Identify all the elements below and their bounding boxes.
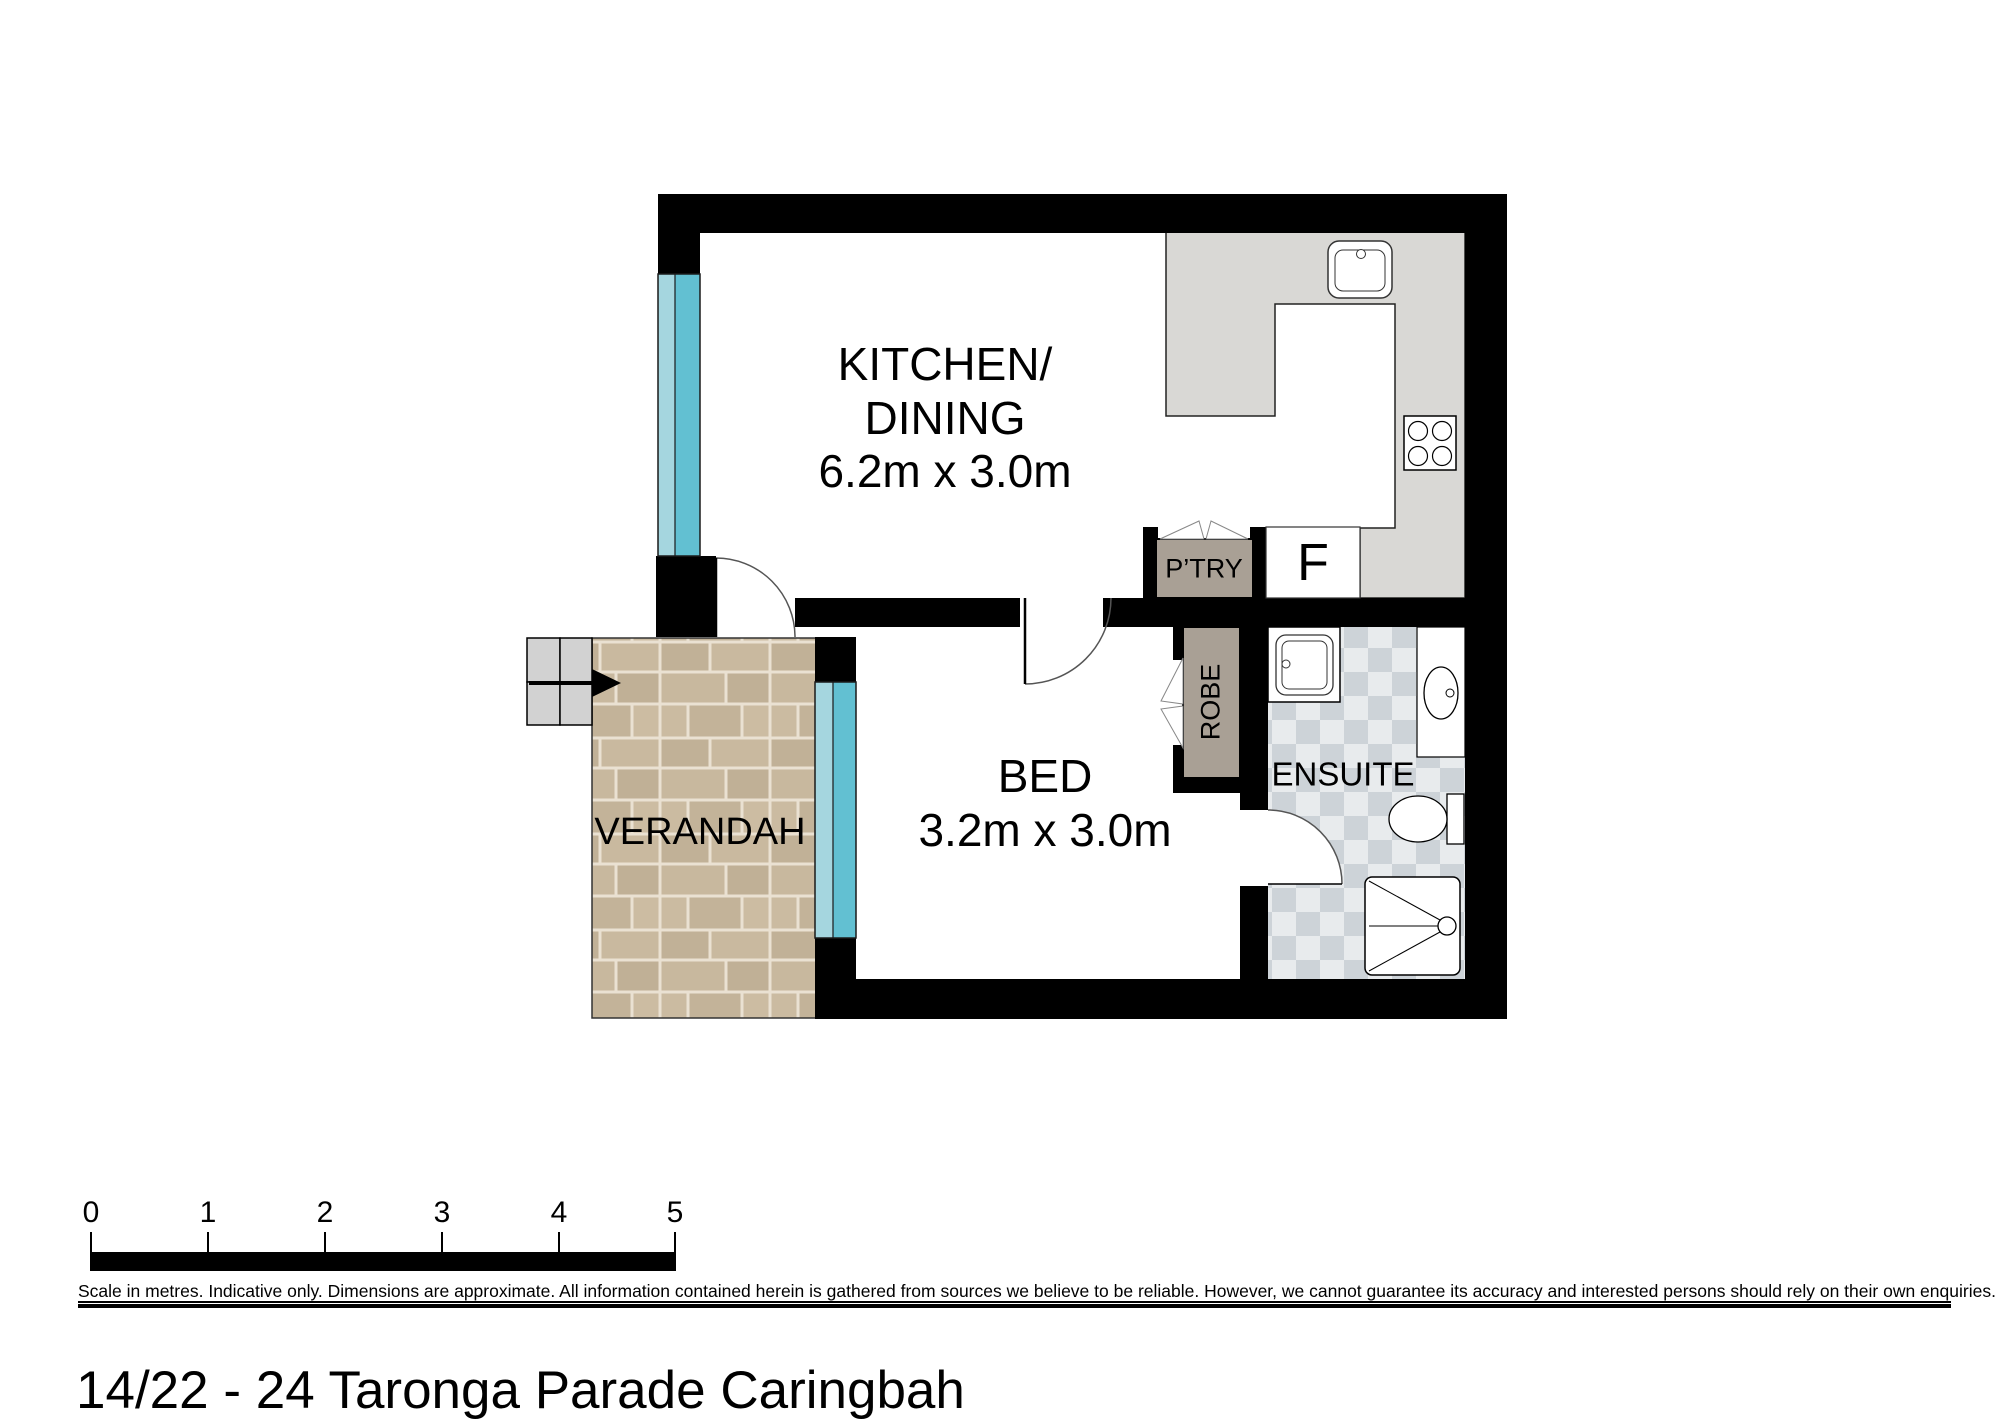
wall-left-lower xyxy=(656,556,716,637)
kitchen-dining-dimensions: 6.2m x 3.0m xyxy=(818,448,1071,494)
wall-kitchen-bed-right xyxy=(1103,598,1465,627)
scale-tick-label: 0 xyxy=(83,1198,100,1228)
verandah-label: VERANDAH xyxy=(594,813,805,851)
bed-window xyxy=(815,682,856,938)
wall-bed-left-lower xyxy=(815,938,856,979)
kitchen-sink xyxy=(1328,241,1392,298)
shower xyxy=(1365,877,1460,975)
floorplan-page: KITCHEN/ DINING 6.2m x 3.0m BED 3.2m x 3… xyxy=(0,0,2013,1423)
toilet xyxy=(1389,794,1464,844)
wall-robe-stub-bottom xyxy=(1173,745,1183,778)
divider-rule xyxy=(78,1301,1951,1308)
robe-bifold-door xyxy=(1161,658,1183,704)
scale-tick-mark xyxy=(324,1232,326,1252)
floorplan-drawing xyxy=(0,0,2013,1423)
bed-door xyxy=(1025,598,1111,684)
scale-tick-mark xyxy=(90,1232,92,1252)
vanity-basin xyxy=(1268,627,1340,702)
fridge-label: F xyxy=(1297,537,1329,589)
wall-robe-bottom xyxy=(1173,778,1240,793)
scale-tick-label: 1 xyxy=(200,1198,217,1228)
wall-bed-left-upper xyxy=(815,637,856,682)
scale-tick-mark xyxy=(207,1232,209,1252)
scale-tick-mark xyxy=(674,1232,676,1252)
scale-tick-label: 4 xyxy=(551,1198,568,1228)
wall-robe-stub-top xyxy=(1173,627,1183,660)
oval-basin xyxy=(1417,627,1465,757)
bed-dimensions: 3.2m x 3.0m xyxy=(918,807,1171,853)
pantry-bifold-door xyxy=(1160,521,1204,539)
robe-label: ROBE xyxy=(1198,664,1225,741)
scale-tick-mark xyxy=(441,1232,443,1252)
kitchen-window xyxy=(658,274,700,556)
kitchen-dining-label-line2: DINING xyxy=(865,395,1026,441)
scale-bar-rule xyxy=(90,1252,676,1271)
scale-tick-label: 2 xyxy=(317,1198,334,1228)
property-address: 14/22 - 24 Taronga Parade Caringbah xyxy=(76,1360,965,1421)
wall-top xyxy=(658,194,1507,233)
scale-tick-mark xyxy=(558,1232,560,1252)
pantry-label: P’TRY xyxy=(1165,556,1243,583)
wall-bed-ensuite-upper xyxy=(1240,627,1268,810)
kitchen-dining-label-line1: KITCHEN/ xyxy=(838,341,1053,387)
wall-bed-ensuite-lower xyxy=(1240,886,1268,979)
scale-tick-label: 5 xyxy=(667,1198,684,1228)
wall-right xyxy=(1465,194,1507,1019)
scale-tick-label: 3 xyxy=(434,1198,451,1228)
disclaimer-text: Scale in metres. Indicative only. Dimens… xyxy=(78,1281,1996,1302)
wall-kitchen-bed-left xyxy=(795,598,1020,627)
verandah-door xyxy=(716,558,795,637)
robe-bifold-door xyxy=(1161,706,1183,748)
ensuite-label: ENSUITE xyxy=(1271,758,1414,791)
wall-left-upper xyxy=(658,194,700,274)
pantry-bifold-door xyxy=(1206,521,1248,539)
wall-bottom xyxy=(815,979,1507,1019)
stove-cooktop xyxy=(1404,416,1456,470)
bed-label: BED xyxy=(998,753,1093,799)
